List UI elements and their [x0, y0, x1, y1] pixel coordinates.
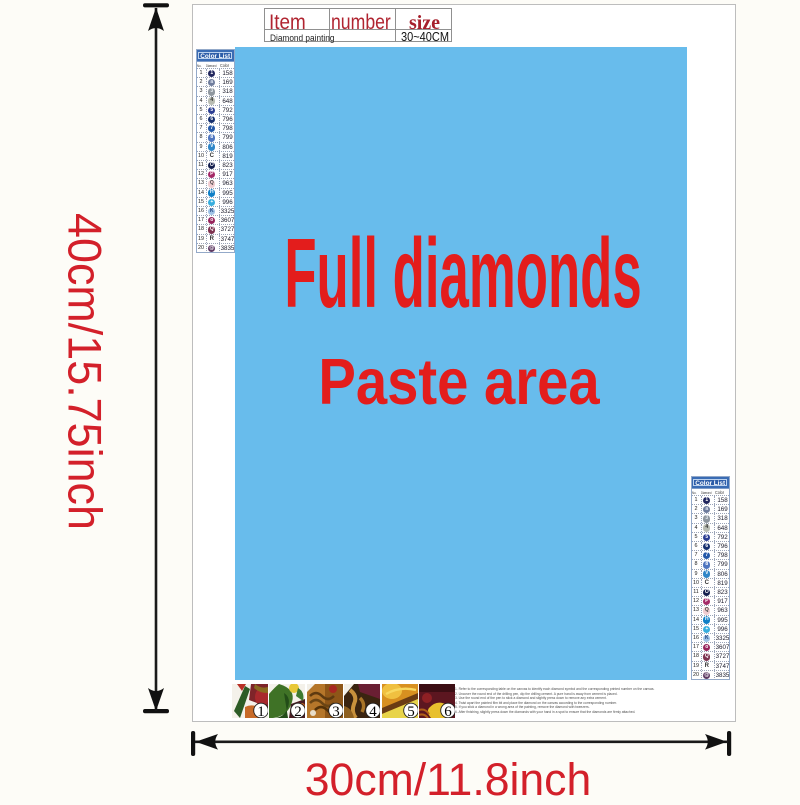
svg-text:1: 1: [257, 704, 265, 718]
svg-text:5: 5: [407, 704, 415, 718]
svg-text:4: 4: [369, 704, 377, 718]
svg-text:6: 6: [444, 704, 452, 718]
svg-text:2: 2: [295, 704, 303, 718]
svg-text:3: 3: [332, 704, 340, 718]
